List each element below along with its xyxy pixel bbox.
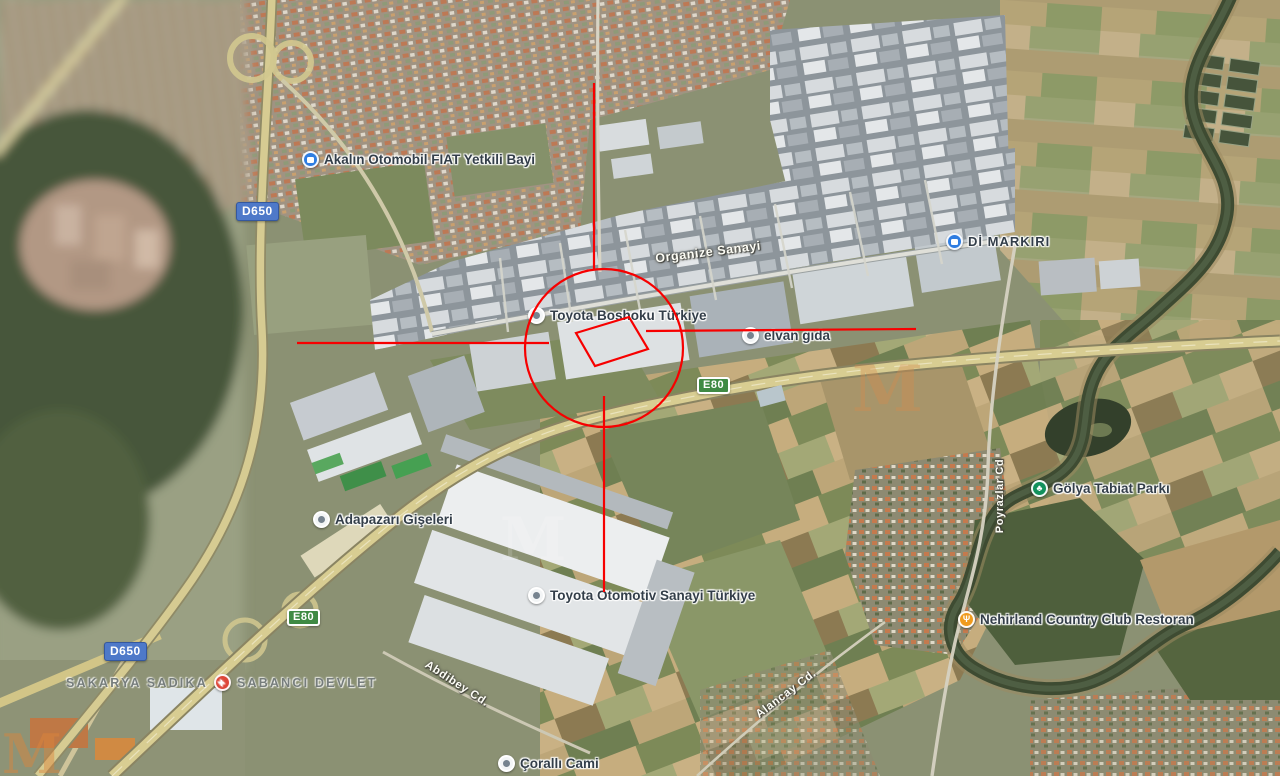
poi-label[interactable]: elvan gıda: [764, 328, 830, 343]
poi-label[interactable]: Toyota Otomotiv Sanayi Türkiye: [550, 588, 755, 603]
poi-label[interactable]: Nehirland Country Club Restoran: [980, 612, 1194, 627]
satellite-map[interactable]: M M M Akalın Otomobil FIAT Yetkili Bayi …: [0, 0, 1280, 776]
poi-elvan-gida[interactable]: elvan gıda: [742, 327, 830, 344]
restaurant-icon[interactable]: Ψ: [958, 611, 975, 628]
poi-adapazari-giseleri[interactable]: Adapazarı Gişeleri: [313, 511, 453, 528]
road-label-poyrazlar: Poyrazlar Cd: [994, 451, 1006, 541]
factory-poi-icon[interactable]: [528, 587, 545, 604]
poi-label[interactable]: Çorallı Cami: [520, 756, 599, 771]
route-badge-d650-bottom: D650: [104, 642, 147, 661]
area-label-suffix: SABANCI DEVLET: [237, 676, 378, 690]
area-label-hospital[interactable]: SAKARYA SADIKA + SABANCI DEVLET: [66, 674, 377, 691]
poi-label[interactable]: Dİ MARKIRI: [968, 234, 1050, 249]
poi-label[interactable]: Toyota Boshoku Türkiye: [550, 308, 707, 323]
route-badge-e80-mid: E80: [697, 377, 730, 394]
poi-fiat-dealer[interactable]: Akalın Otomobil FIAT Yetkili Bayi: [302, 151, 535, 168]
area-label-prefix: SAKARYA SADIKA: [66, 676, 208, 690]
hospital-icon[interactable]: +: [214, 674, 231, 691]
store-icon[interactable]: [946, 233, 963, 250]
poi-label[interactable]: Gölya Tabiat Parkı: [1053, 481, 1170, 496]
route-badge-e80-left: E80: [287, 609, 320, 626]
poi-label[interactable]: Adapazarı Gişeleri: [335, 512, 453, 527]
toll-poi-icon[interactable]: [313, 511, 330, 528]
poi-market[interactable]: Dİ MARKIRI: [946, 233, 1050, 250]
park-tree-icon[interactable]: ♣: [1031, 480, 1048, 497]
poi-nehirland-restoran[interactable]: Ψ Nehirland Country Club Restoran: [958, 611, 1194, 628]
route-badge-d650-top: D650: [236, 202, 279, 221]
poi-label[interactable]: Akalın Otomobil FIAT Yetkili Bayi: [324, 152, 535, 167]
factory-poi-icon[interactable]: [528, 307, 545, 324]
poi-toyota-otomotiv[interactable]: Toyota Otomotiv Sanayi Türkiye: [528, 587, 755, 604]
poi-coralli-cami[interactable]: Çorallı Cami: [498, 755, 599, 772]
satellite-imagery: [0, 0, 1280, 776]
car-dealer-icon[interactable]: [302, 151, 319, 168]
poi-golya-park[interactable]: ♣ Gölya Tabiat Parkı: [1031, 480, 1170, 497]
poi-pin-icon[interactable]: [498, 755, 515, 772]
poi-toyota-boshoku[interactable]: Toyota Boshoku Türkiye: [528, 307, 707, 324]
store-poi-icon[interactable]: [742, 327, 759, 344]
